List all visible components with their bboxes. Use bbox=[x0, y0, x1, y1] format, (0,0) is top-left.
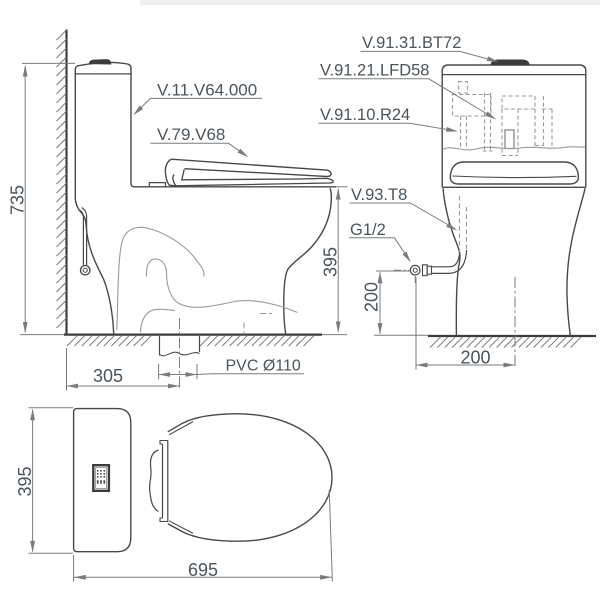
svg-text:V.11.V64.000: V.11.V64.000 bbox=[157, 81, 257, 100]
svg-text:200: 200 bbox=[362, 282, 382, 312]
svg-text:395: 395 bbox=[321, 247, 341, 277]
svg-text:395: 395 bbox=[15, 466, 35, 496]
svg-text:V.79.V68: V.79.V68 bbox=[157, 125, 225, 144]
svg-text:735: 735 bbox=[8, 185, 28, 215]
svg-text:695: 695 bbox=[188, 560, 218, 580]
svg-text:V.91.21.LFD58: V.91.21.LFD58 bbox=[320, 62, 429, 80]
svg-text:PVC Ø110: PVC Ø110 bbox=[226, 358, 301, 375]
svg-text:G1/2: G1/2 bbox=[350, 221, 386, 239]
svg-text:305: 305 bbox=[93, 366, 123, 386]
svg-text:200: 200 bbox=[461, 348, 491, 368]
svg-text:V.91.31.BT72: V.91.31.BT72 bbox=[362, 34, 461, 52]
svg-text:V.93.T8: V.93.T8 bbox=[351, 186, 407, 204]
svg-text:V.91.10.R24: V.91.10.R24 bbox=[320, 106, 410, 124]
